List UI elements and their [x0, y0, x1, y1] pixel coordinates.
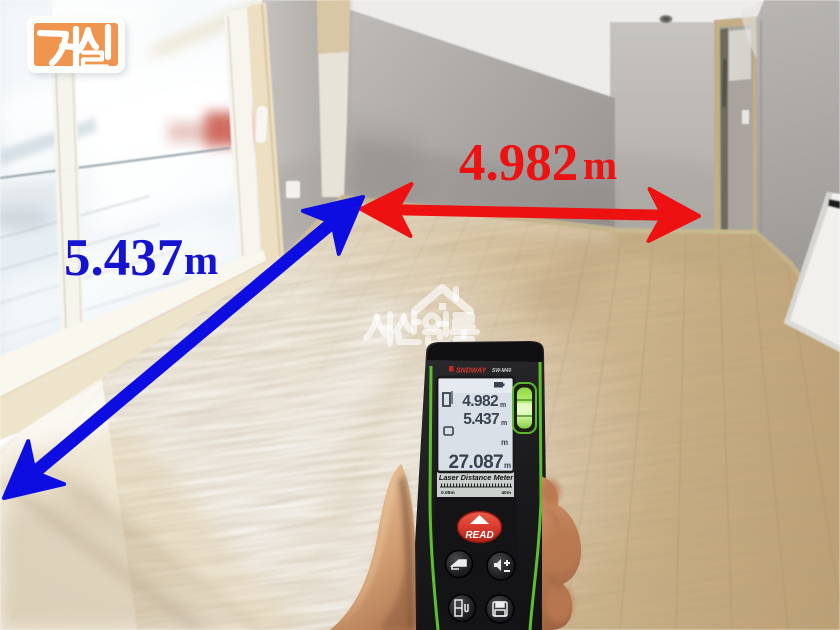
svg-text:SNDWAY: SNDWAY: [456, 368, 488, 375]
svg-text:5.437: 5.437: [463, 411, 499, 428]
svg-text:READ: READ: [465, 530, 493, 541]
svg-text:5.437: 5.437: [64, 229, 183, 287]
svg-text:m: m: [501, 420, 507, 427]
svg-text:Laser Distance Meter: Laser Distance Meter: [439, 473, 514, 482]
svg-text:m: m: [500, 402, 506, 409]
svg-text:m: m: [504, 461, 511, 470]
svg-text:m: m: [501, 438, 508, 447]
svg-text:m: m: [184, 237, 218, 283]
svg-text:0.05m: 0.05m: [441, 490, 455, 496]
svg-text:4.982: 4.982: [462, 393, 498, 410]
svg-text:m: m: [583, 142, 617, 188]
svg-text:4.982: 4.982: [459, 134, 578, 192]
svg-text:SW-M40: SW-M40: [492, 368, 511, 374]
svg-text:40m: 40m: [501, 490, 511, 496]
svg-text:27.087: 27.087: [448, 452, 503, 473]
